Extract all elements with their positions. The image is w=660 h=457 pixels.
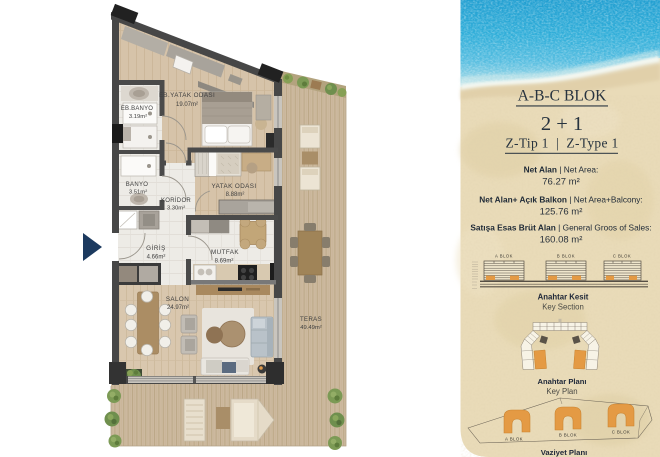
svg-text:Net Alan+ Açık Balkon | Net Ar: Net Alan+ Açık Balkon | Net Area+Balcony… [479,195,642,205]
svg-text:A BLOK: A BLOK [505,437,523,442]
svg-text:125.76 m²: 125.76 m² [540,207,583,218]
svg-text:8.88m²: 8.88m² [226,192,245,198]
svg-text:Vaziyet Planı: Vaziyet Planı [541,448,588,457]
svg-text:Z-Tip 1 | Z-Type 1: Z-Tip 1 | Z-Type 1 [505,136,618,151]
svg-text:Anahtar Planı: Anahtar Planı [538,377,587,386]
svg-text:3.30m²: 3.30m² [167,206,185,212]
svg-text:160.08 m²: 160.08 m² [540,235,583,246]
svg-text:C BLOK: C BLOK [613,254,631,259]
svg-text:A BLOK: A BLOK [495,254,513,259]
svg-text:3.19m²: 3.19m² [129,114,147,120]
svg-text:Net Alan | Net Area:: Net Alan | Net Area: [524,165,599,175]
svg-text:Satışa Esas Brüt Alan | Genera: Satışa Esas Brüt Alan | General Groos of… [470,223,651,233]
svg-text:Key Plan: Key Plan [546,387,577,396]
svg-text:GİRİŞ: GİRİŞ [146,243,166,252]
svg-text:SALON: SALON [166,296,189,303]
svg-text:BANYO: BANYO [126,182,149,188]
svg-text:76.27 m²: 76.27 m² [542,177,580,188]
svg-text:A-B-C BLOK: A-B-C BLOK [518,88,608,105]
svg-text:19.07m²: 19.07m² [176,102,198,108]
svg-text:MUTFAK: MUTFAK [211,249,239,256]
svg-text:B BLOK: B BLOK [559,433,577,438]
svg-text:49.49m²: 49.49m² [300,325,322,331]
svg-text:Key Section: Key Section [542,303,584,312]
svg-text:YATAK ODASI: YATAK ODASI [212,183,257,190]
svg-text:Anahtar Kesit: Anahtar Kesit [538,293,589,302]
svg-text:KORİDOR: KORİDOR [161,197,191,204]
svg-text:3.51m²: 3.51m² [129,190,147,196]
svg-text:2 + 1: 2 + 1 [541,113,583,135]
svg-text:EB.BANYO: EB.BANYO [121,106,153,112]
svg-text:4.66m²: 4.66m² [147,255,166,261]
svg-text:8.69m²: 8.69m² [215,259,234,265]
svg-text:B BLOK: B BLOK [557,254,575,259]
svg-text:EB.YATAK ODASI: EB.YATAK ODASI [159,92,215,99]
svg-text:24.97m²: 24.97m² [167,305,189,311]
svg-text:TERAS: TERAS [300,317,322,323]
svg-text:C BLOK: C BLOK [612,430,631,435]
